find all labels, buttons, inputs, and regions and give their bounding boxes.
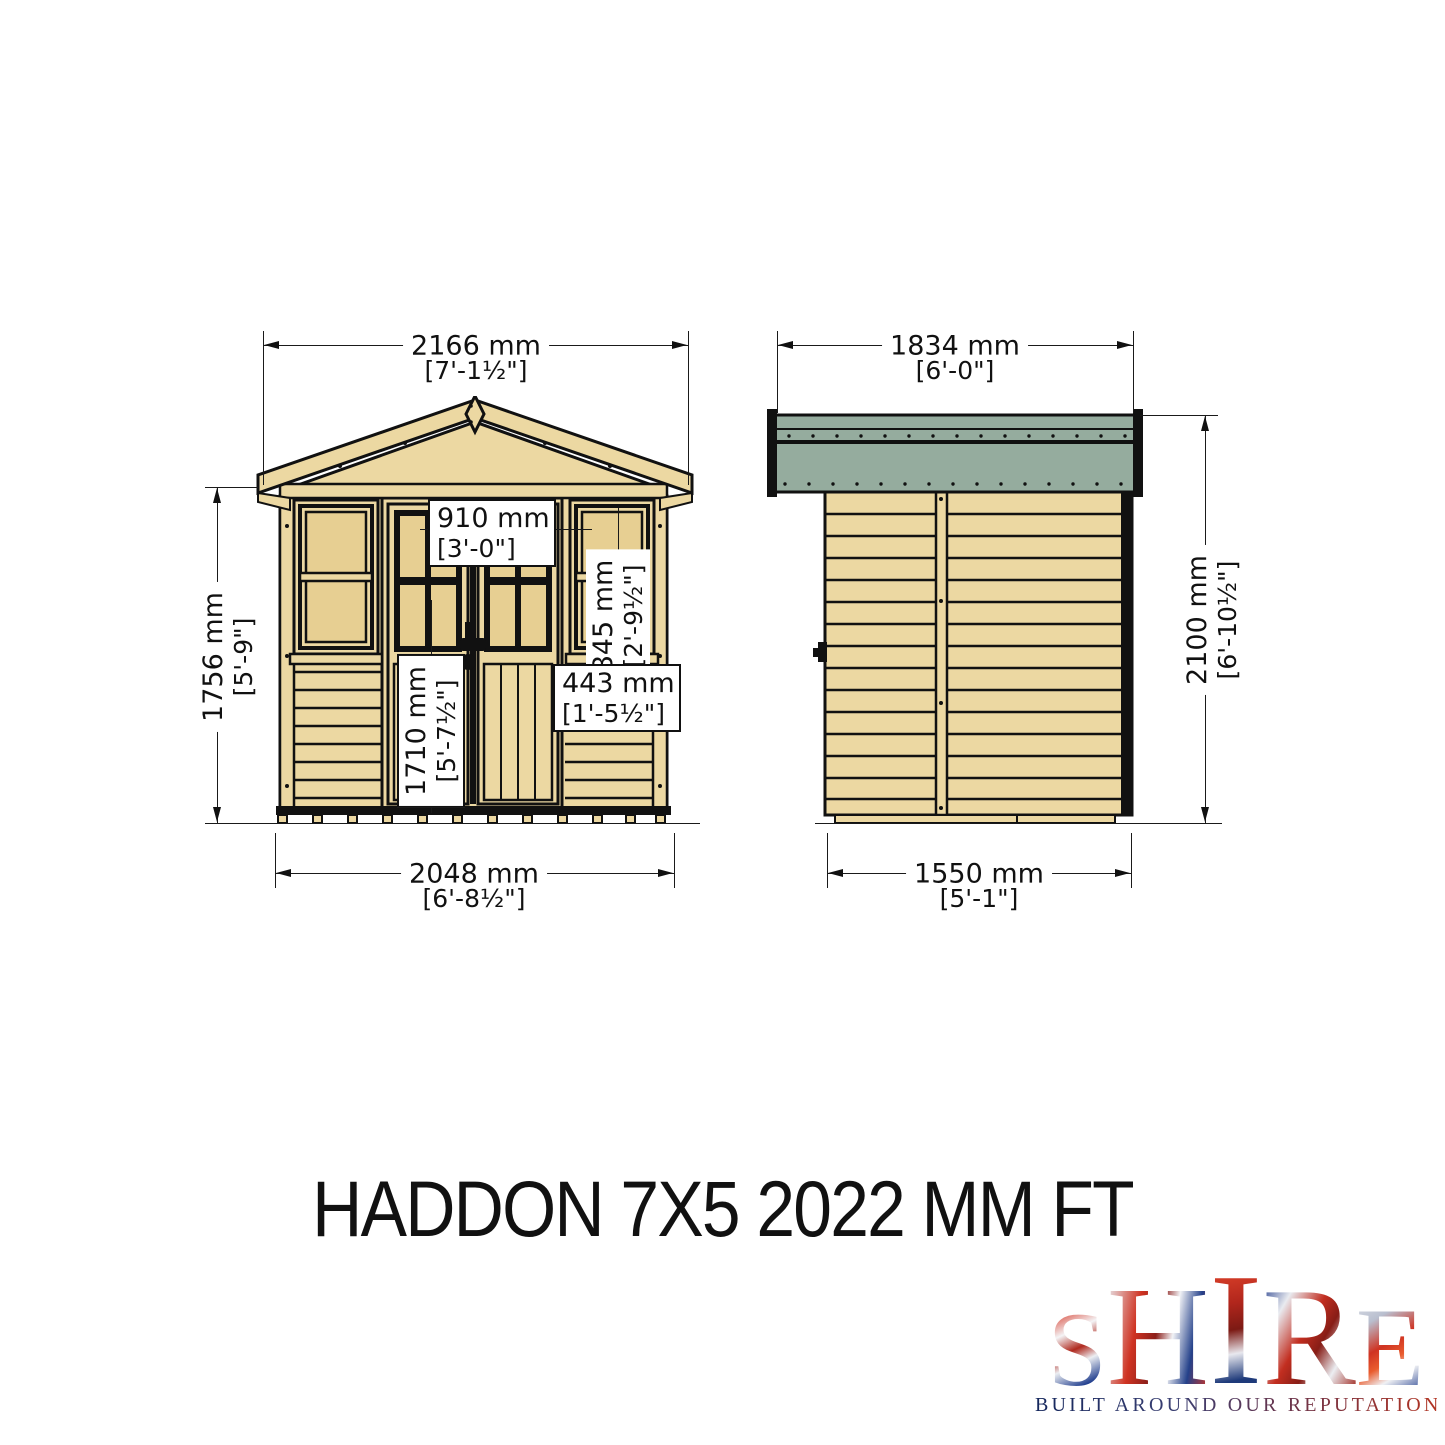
- dim-label-ft: [6'-8½"]: [417, 884, 532, 913]
- diagram-canvas: 2166 mm [7'-1½"] 1834 mm [6'-0"] 1756 mm…: [0, 0, 1445, 1445]
- ground-line-front: [205, 823, 700, 824]
- logo-tagline: BUILT AROUND OUR REPUTATION: [1035, 1394, 1437, 1417]
- side-elevation-drawing: [765, 396, 1155, 836]
- shire-logo: S H I R E BUILT AROUND OUR REPUTATION: [1035, 1240, 1437, 1417]
- logo-letter: S: [1048, 1309, 1107, 1392]
- dim-label-ft: [5'-1"]: [934, 884, 1025, 913]
- dim-label-ft: [7'-1½"]: [419, 356, 534, 385]
- ground-line-side: [815, 823, 1222, 824]
- dim-label-ft: [6'-0"]: [910, 356, 1001, 385]
- dim-label-rotated: 2100 mm [6'-10½"]: [1180, 545, 1244, 695]
- dim-label-rotated: 845 mm [2'-9½"]: [586, 550, 650, 683]
- logo-letter: I: [1209, 1267, 1262, 1392]
- dim-label-box: 443 mm [1'-5½"]: [553, 664, 681, 732]
- dim-label-box: 910 mm [3'-0"]: [428, 499, 556, 567]
- logo-letter: R: [1262, 1283, 1355, 1392]
- logo-letter: H: [1107, 1281, 1210, 1392]
- dim-label-rotated: 1756 mm [5'-9"]: [196, 582, 260, 732]
- logo-letter: E: [1356, 1305, 1424, 1392]
- shire-logo-letters: S H I R E: [1035, 1240, 1437, 1392]
- dim-label-rotated: 1710 mm [5'-7½"]: [397, 654, 465, 808]
